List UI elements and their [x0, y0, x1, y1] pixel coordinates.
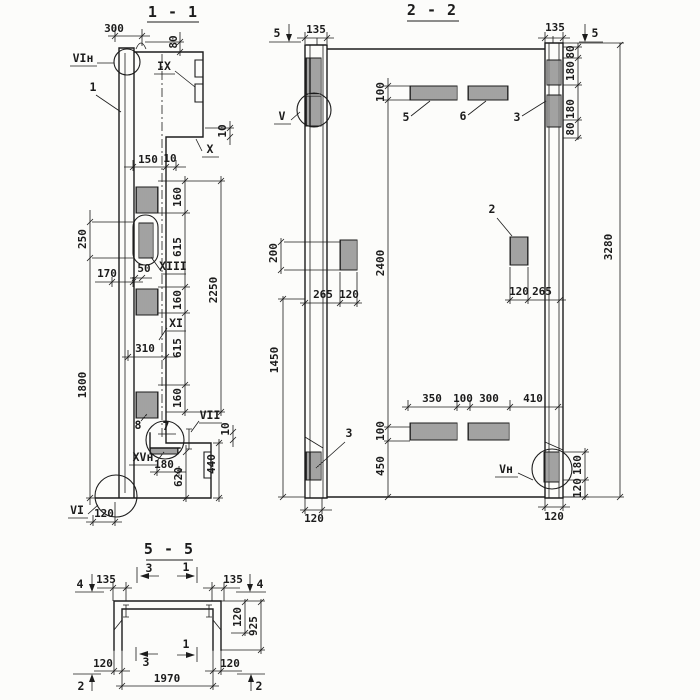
cut-mark-3-top: 3 — [146, 561, 153, 575]
cut-mark-4-right: 4 — [257, 577, 264, 591]
hatch-block — [547, 95, 561, 127]
dim-text: 135 — [545, 21, 565, 34]
dim-text: 120 — [231, 607, 244, 627]
hatch-square-2 — [510, 237, 528, 265]
item-label: 3 — [346, 426, 353, 440]
hatch-block — [306, 58, 321, 94]
section-2-2-title: 2 - 2 — [407, 1, 457, 19]
dim-text: 180 — [571, 455, 584, 475]
section-5-5-title: 5 - 5 — [144, 540, 194, 558]
section-mark: XIII — [159, 259, 187, 273]
dim-text: 180 — [154, 458, 174, 471]
dim-text: 250 — [76, 229, 89, 249]
dim-text: 120 — [220, 657, 240, 670]
dim-text: 120 — [571, 478, 584, 498]
dim-text: 925 — [247, 616, 260, 636]
dim-text: 100 — [374, 82, 387, 102]
item-label: 7 — [163, 419, 170, 433]
dim-text: 120 — [304, 512, 324, 525]
cut-mark-4-left: 4 — [77, 577, 84, 591]
dim-text: 1970 — [154, 672, 181, 685]
item-label: 6 — [460, 109, 467, 123]
item-label: 3 — [514, 110, 521, 124]
cut-mark-5-left: 5 — [274, 26, 281, 40]
cut-mark-2-left: 2 — [78, 679, 85, 693]
dim-text: 100 — [374, 421, 387, 441]
dim-text: 410 — [523, 392, 543, 405]
drawing-canvas: 1 - 1 300 — [0, 0, 700, 700]
dim-text: 170 — [97, 267, 117, 280]
dim-text: 440 — [205, 454, 218, 474]
dim-text: 100 — [453, 392, 473, 405]
dim-text: 10 — [219, 422, 232, 435]
dim-text: 620 — [172, 467, 185, 487]
detail-label: Vн — [499, 462, 513, 476]
hatch-block — [136, 289, 158, 315]
detail-label: VIн — [73, 51, 94, 65]
dim-text: 50 — [137, 262, 150, 275]
bracket-hatch — [150, 448, 178, 454]
dim-text: 200 — [267, 243, 280, 263]
hatch-square — [340, 240, 357, 270]
dim-text: 310 — [135, 342, 155, 355]
slot-insert — [139, 223, 153, 258]
hatch-block — [547, 60, 561, 85]
paper-background — [0, 0, 700, 700]
dim-text: 120 — [93, 657, 113, 670]
dim-text: 300 — [104, 22, 124, 35]
dim-text: 120 — [94, 507, 114, 520]
hatch-block — [136, 187, 158, 213]
dim-text: 2250 — [207, 277, 220, 304]
dim-text: 265 — [532, 285, 552, 298]
hatch-block — [544, 452, 559, 482]
hatch-bar-5 — [410, 86, 457, 100]
dim-text: 80 — [564, 45, 577, 58]
item-label: 2 — [489, 202, 496, 216]
dim-text: 120 — [544, 510, 564, 523]
section-mark: VII — [200, 408, 221, 422]
section-1-1-title: 1 - 1 — [148, 3, 198, 21]
dim-text: 10 — [163, 152, 176, 165]
section-mark: X — [207, 142, 214, 156]
hatch-bar — [468, 423, 509, 440]
dim-text: 1800 — [76, 372, 89, 399]
dim-text: 3280 — [602, 234, 615, 261]
dim-text: 615 — [171, 338, 184, 358]
section-mark: XI — [169, 316, 183, 330]
dim-text: 300 — [479, 392, 499, 405]
dim-text: 450 — [374, 456, 387, 476]
dim-text: 2400 — [374, 250, 387, 277]
dim-text: 350 — [422, 392, 442, 405]
dim-text: 10 — [216, 124, 229, 137]
dim-text: 120 — [509, 285, 529, 298]
dim-text: 180 — [564, 61, 577, 81]
dim-text: 615 — [171, 237, 184, 257]
dim-text: 150 — [138, 153, 158, 166]
dim-text: 135 — [96, 573, 116, 586]
dim-text: 265 — [313, 288, 333, 301]
dim-text: 120 — [339, 288, 359, 301]
dim-text: 160 — [171, 290, 184, 310]
hatch-block — [306, 96, 321, 126]
section-mark: XVн — [133, 450, 154, 464]
dim-text: 135 — [223, 573, 243, 586]
detail-label: VI — [70, 503, 84, 517]
dim-text: 135 — [306, 23, 326, 36]
dim-text: 180 — [564, 99, 577, 119]
cut-mark-1-top: 1 — [183, 560, 190, 574]
dim-text: 80 — [564, 122, 577, 135]
dim-text: 1450 — [268, 347, 281, 374]
item-label: 8 — [135, 418, 142, 432]
cut-mark-1-bottom: 1 — [183, 637, 190, 651]
hatch-bar-6 — [468, 86, 508, 100]
cut-mark-3-bottom: 3 — [143, 655, 150, 669]
cut-mark-5-right: 5 — [592, 26, 599, 40]
section-mark: IX — [157, 59, 171, 73]
item-label: 5 — [403, 110, 410, 124]
item-label: 1 — [90, 80, 97, 94]
cut-mark-2-right: 2 — [256, 679, 263, 693]
dim-text: 160 — [171, 187, 184, 207]
hatch-bar — [410, 423, 457, 440]
dim-text: 160 — [171, 388, 184, 408]
dim-text: 80 — [167, 35, 180, 48]
detail-label: V — [279, 109, 286, 123]
